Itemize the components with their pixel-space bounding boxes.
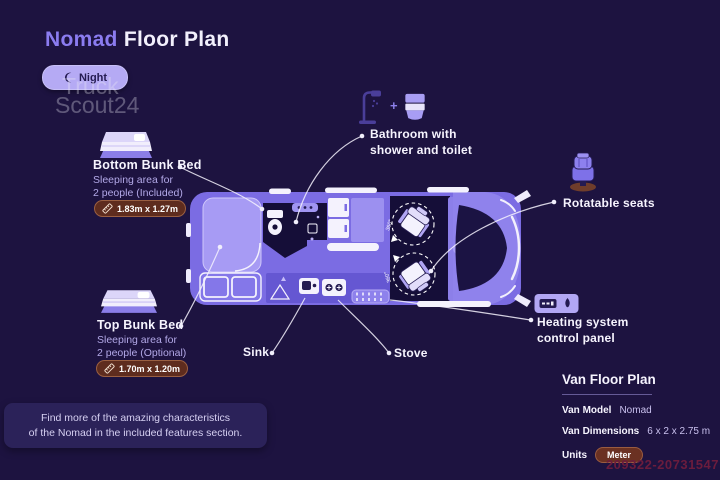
bathroom-label: Bathroom with shower and toilet (370, 127, 472, 158)
van-floorplan-diagram: 360° 360° (185, 185, 535, 315)
bunk-bed-icon (98, 287, 160, 315)
spec-row-van-model: Van Model Nomad (562, 405, 712, 416)
moon-icon (63, 72, 74, 83)
footer-note: Find more of the amazing characteristics… (4, 403, 267, 448)
top-bunk-desc-1: Sleeping area for (97, 334, 177, 347)
bathroom-label-line1: Bathroom with (370, 127, 472, 143)
spec-label: Units (562, 450, 587, 461)
stove-label: Stove (394, 346, 428, 360)
title-brand: Nomad (45, 28, 118, 51)
bottom-bunk-dimensions-badge: 1.83m x 1.27m (94, 200, 186, 217)
bottom-bunk-dimensions: 1.83m x 1.27m (117, 204, 178, 214)
spec-panel: Van Floor Plan Van Model Nomad Van Dimen… (562, 372, 712, 463)
spec-label: Van Model (562, 405, 611, 416)
bathroom-label-line2: shower and toilet (370, 143, 472, 159)
sink-label: Sink (243, 345, 269, 359)
heating-label-line1: Heating system (537, 315, 629, 331)
spec-label: Van Dimensions (562, 426, 639, 437)
heating-panel-icon (534, 294, 579, 313)
heating-label: Heating system control panel (537, 315, 629, 346)
night-toggle-label: Night (79, 72, 107, 84)
bottom-bunk-desc-1: Sleeping area for (93, 174, 173, 187)
top-bunk-dimensions-badge: 1.70m x 1.20m (96, 360, 188, 377)
plus-sign: + (390, 98, 398, 113)
photo-id-watermark: 209322-20731547 (606, 457, 719, 472)
top-bunk-dimensions: 1.70m x 1.20m (119, 364, 180, 374)
ruler-icon (102, 203, 113, 214)
top-bunk-desc-2: 2 people (Optional) (97, 347, 186, 360)
watermark-line2: Scout24 (55, 96, 139, 115)
top-bunk-title: Top Bunk Bed (97, 318, 183, 332)
rotatable-seats-label: Rotatable seats (563, 196, 655, 210)
page-title: Nomad Floor Plan (45, 28, 230, 52)
bunk-bed-icon (97, 127, 155, 161)
footer-note-line1: Find more of the amazing characteristics (41, 411, 230, 426)
floorplan-infographic: Nomad Floor Plan Night Truck Scout24 (0, 0, 720, 480)
spec-row-van-dimensions: Van Dimensions 6 x 2 x 2.75 m (562, 426, 712, 437)
spec-panel-title: Van Floor Plan (562, 372, 652, 395)
shower-icon (358, 88, 384, 125)
heating-label-line2: control panel (537, 331, 629, 347)
ruler-icon (104, 363, 115, 374)
spec-value: 6 x 2 x 2.75 m (647, 426, 710, 437)
toilet-icon (402, 92, 428, 121)
bottom-bunk-title: Bottom Bunk Bed (93, 158, 202, 172)
spec-value: Nomad (619, 405, 651, 416)
bottom-bunk-desc-2: 2 people (Included) (93, 187, 183, 200)
seat-icon (567, 152, 599, 193)
title-rest: Floor Plan (118, 28, 230, 51)
night-mode-toggle[interactable]: Night (42, 65, 128, 90)
footer-note-line2: of the Nomad in the included features se… (29, 426, 243, 441)
